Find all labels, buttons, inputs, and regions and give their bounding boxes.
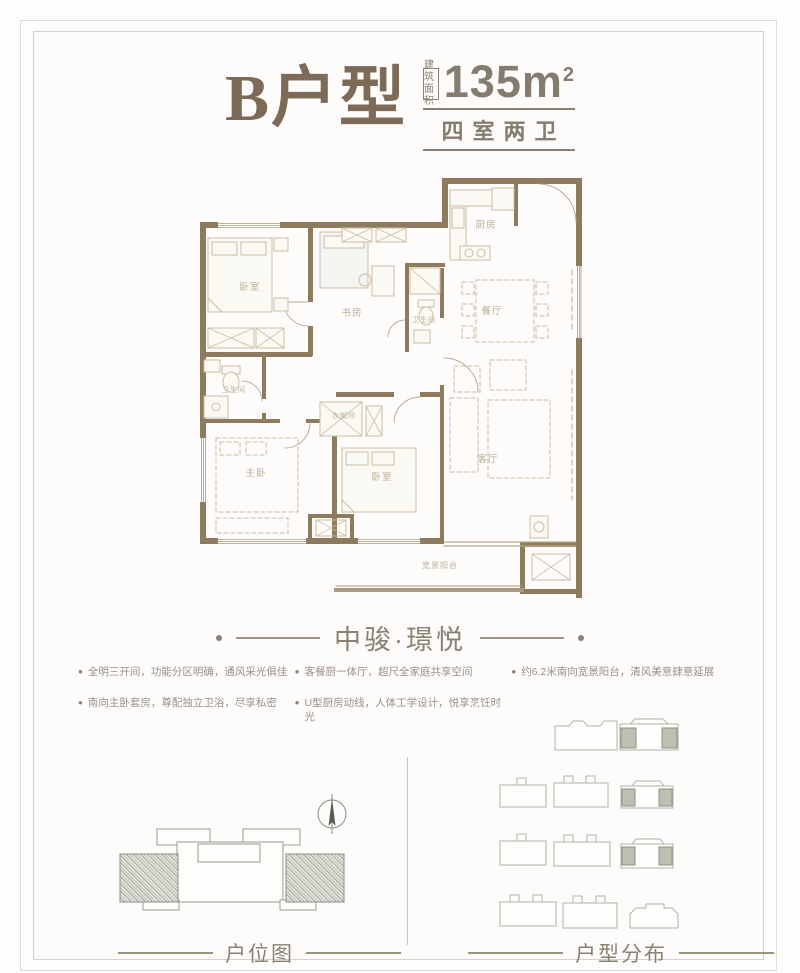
building-area-badge: 建筑 面积 (423, 68, 439, 100)
feature-text: 客餐厨一体厅，超尺全家庭共享空间 (305, 665, 473, 679)
brand-row: 中骏·璟悦 (0, 618, 800, 657)
rule-bottom (423, 149, 575, 151)
room-label-bed1: 卧室 (239, 281, 260, 293)
badge-line1: 建筑 (424, 60, 438, 84)
caption-line (468, 952, 563, 954)
room-label-bath1: 卫生间 (222, 385, 246, 394)
room-label-balcony: 宽景阳台 (422, 560, 458, 570)
unit-distribution-caption: 户型分布 (468, 938, 774, 968)
header: B户型 建筑 面积 135m2 四室两卫 (0, 58, 800, 155)
caption-line (306, 952, 401, 954)
feature-item: ● 南向主卧套房，尊配独立卫浴，尽享私密 (78, 696, 295, 710)
room-count-label: 四室两卫 (423, 114, 575, 146)
feature-item: ● 约6.2米南向宽景阳台，清风美意肆意延展 (511, 665, 728, 679)
caption-line (118, 952, 213, 954)
area-value: 135m2 (444, 58, 575, 105)
unit-distribution-drawing (480, 702, 780, 938)
site-plan-caption: 户位图 (118, 938, 401, 968)
site-plan-drawing (100, 782, 380, 932)
bullet-icon: ● (511, 665, 516, 679)
room-label-dining: 餐厅 (481, 305, 502, 317)
feature-text: 全明三开间，功能分区明确，通风采光俱佳 (88, 665, 288, 679)
caption-text: 户位图 (225, 938, 294, 968)
feature-item: ● 全明三开间，功能分区明确，通风采光俱佳 (78, 665, 295, 679)
room-label-bed3: 卧室 (371, 471, 392, 483)
feature-text: 南向主卧套房，尊配独立卫浴，尽享私密 (88, 696, 277, 710)
room-label-kitchen: 厨房 (475, 219, 496, 231)
room-label-closet: 衣帽间 (332, 411, 356, 420)
feature-text: 约6.2米南向宽景阳台，清风美意肆意延展 (521, 665, 714, 679)
rule-top (423, 108, 575, 110)
bullet-icon: ● (78, 696, 83, 710)
brand-name: 中骏·璟悦 (334, 618, 466, 657)
caption-text: 户型分布 (575, 938, 667, 968)
badge-line2: 面积 (424, 84, 438, 108)
bullet-icon: ● (295, 665, 300, 679)
page-title: B户型 (225, 66, 407, 132)
bullet-icon: ● (295, 696, 300, 724)
room-label-master: 主卧 (245, 467, 266, 479)
feature-col-1: ● 全明三开间，功能分区明确，通风采光俱佳 ● 南向主卧套房，尊配独立卫浴，尽享… (78, 665, 295, 724)
floorplan-drawing: 卧室 书房 卫生间 卫生间 衣帽间 主卧 卧室 厨房 餐厅 客厅 宽景阳台 (192, 170, 592, 602)
room-label-study: 书房 (341, 307, 362, 319)
room-label-living: 客厅 (477, 453, 498, 465)
brand-line-right (480, 637, 564, 639)
caption-line (679, 952, 774, 954)
north-compass-icon (318, 794, 346, 834)
area-block: 建筑 面积 135m2 四室两卫 (423, 58, 575, 155)
feature-item: ● U型厨房动线，人体工学设计，悦享烹饪时光 (295, 696, 512, 724)
room-label-bath2: 卫生间 (412, 315, 436, 324)
bullet-icon: ● (78, 665, 83, 679)
brand-line-left (236, 637, 320, 639)
brand-dot-left (216, 635, 222, 641)
section-divider (407, 757, 408, 945)
brand-dot-right (578, 635, 584, 641)
feature-col-2: ● 客餐厨一体厅，超尺全家庭共享空间 ● U型厨房动线，人体工学设计，悦享烹饪时… (295, 665, 512, 724)
feature-item: ● 客餐厨一体厅，超尺全家庭共享空间 (295, 665, 512, 679)
